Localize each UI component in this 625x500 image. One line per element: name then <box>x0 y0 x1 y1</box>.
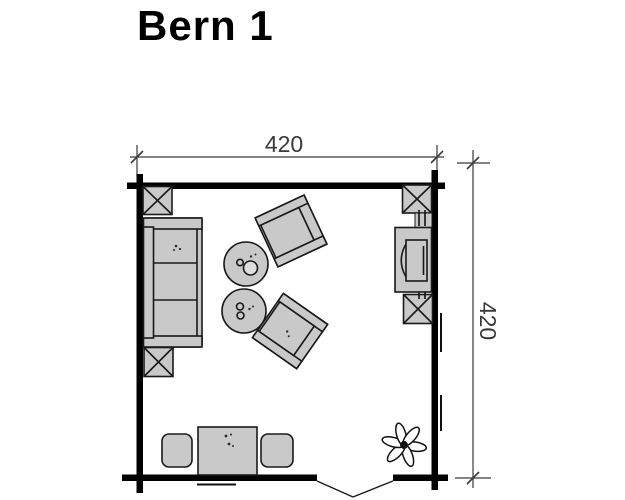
dimension-width: 420 <box>130 131 444 177</box>
dimension-depth: 420 <box>455 150 501 488</box>
dimension-depth-label: 420 <box>475 302 501 340</box>
sofa-backrest <box>144 227 154 338</box>
desk-chair-left <box>162 434 192 467</box>
table-decor-cup <box>237 303 244 310</box>
log-joint-icon <box>403 185 432 213</box>
desk-table <box>198 427 257 475</box>
tv-sideboard <box>395 228 432 293</box>
wall-left <box>137 174 144 493</box>
log-joint-icon <box>404 295 433 324</box>
table-decor-cup <box>237 259 243 265</box>
log-joint-icon <box>143 187 172 215</box>
wall-bottom-right-segment <box>393 475 448 482</box>
round-coffee-table-top <box>224 242 268 286</box>
desk-set <box>162 427 293 475</box>
window-frame <box>415 213 432 228</box>
desk-chair-right <box>261 434 293 467</box>
log-joint-icon <box>144 348 173 377</box>
plant-icon <box>381 422 427 468</box>
table-decor-cup <box>237 312 244 319</box>
floor-plan-drawing: 420 420 <box>0 0 625 500</box>
plant-center <box>401 442 407 448</box>
sofa <box>144 218 203 347</box>
table-decor-bowl <box>244 261 258 275</box>
dimension-width-label: 420 <box>265 131 303 157</box>
door-swing <box>317 481 393 497</box>
wall-top <box>127 183 445 190</box>
